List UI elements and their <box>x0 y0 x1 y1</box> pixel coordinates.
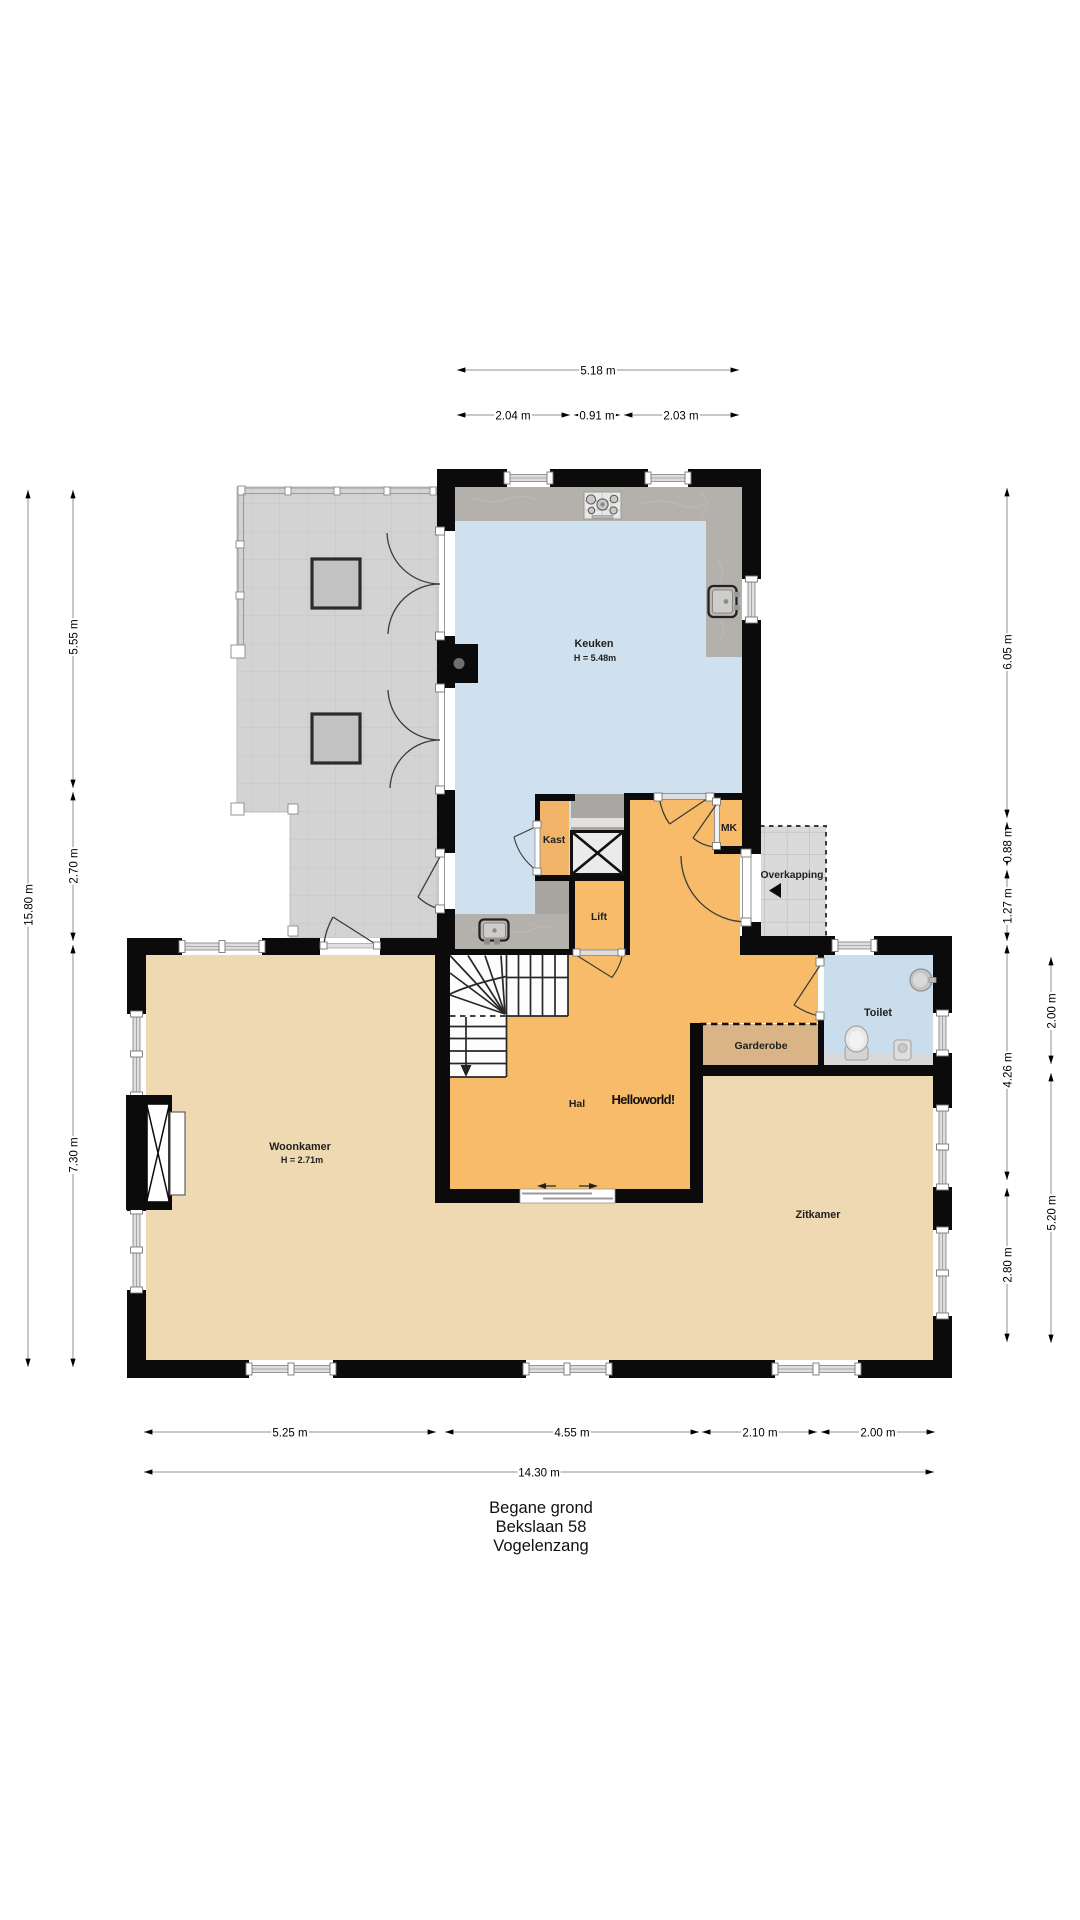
svg-text:Hal: Hal <box>569 1098 585 1110</box>
svg-text:2.04 m: 2.04 m <box>495 411 530 423</box>
svg-text:2.10 m: 2.10 m <box>742 1428 777 1440</box>
svg-text:Begane grond: Begane grond <box>489 1499 593 1517</box>
svg-text:6.05 m: 6.05 m <box>1003 634 1015 669</box>
svg-text:1.27 m: 1.27 m <box>1003 888 1015 923</box>
svg-text:4.55 m: 4.55 m <box>554 1428 589 1440</box>
svg-text:H = 2.71m: H = 2.71m <box>281 1155 323 1165</box>
svg-text:Vogelenzang: Vogelenzang <box>493 1537 588 1555</box>
svg-text:Keuken: Keuken <box>574 638 613 650</box>
svg-text:MK: MK <box>721 823 738 834</box>
svg-text:15.80 m: 15.80 m <box>24 884 36 926</box>
svg-text:Woonkamer: Woonkamer <box>269 1141 331 1153</box>
svg-text:7.30 m: 7.30 m <box>69 1137 81 1172</box>
svg-text:5.20 m: 5.20 m <box>1047 1195 1059 1230</box>
svg-text:Kast: Kast <box>543 835 566 846</box>
svg-text:Garderobe: Garderobe <box>734 1040 787 1052</box>
svg-text:14.30 m: 14.30 m <box>518 1468 560 1480</box>
svg-text:Zitkamer: Zitkamer <box>795 1209 841 1221</box>
svg-text:H = 5.48m: H = 5.48m <box>574 653 616 663</box>
svg-text:2.70 m: 2.70 m <box>69 848 81 883</box>
svg-text:0.88 m: 0.88 m <box>1003 827 1015 862</box>
svg-text:2.00 m: 2.00 m <box>860 1428 895 1440</box>
svg-text:5.25 m: 5.25 m <box>272 1428 307 1440</box>
svg-text:0.91 m: 0.91 m <box>579 411 614 423</box>
svg-text:Toilet: Toilet <box>864 1007 892 1019</box>
svg-text:2.80 m: 2.80 m <box>1003 1247 1015 1282</box>
svg-text:2.00 m: 2.00 m <box>1047 993 1059 1028</box>
svg-text:Helloworld!: Helloworld! <box>611 1092 674 1107</box>
svg-text:Bekslaan 58: Bekslaan 58 <box>496 1518 587 1536</box>
svg-text:2.03 m: 2.03 m <box>663 411 698 423</box>
svg-text:Overkapping: Overkapping <box>761 870 824 881</box>
svg-text:5.18 m: 5.18 m <box>580 366 615 378</box>
svg-text:Lift: Lift <box>591 912 608 923</box>
svg-text:5.55 m: 5.55 m <box>69 619 81 654</box>
svg-text:4.26 m: 4.26 m <box>1003 1052 1015 1087</box>
